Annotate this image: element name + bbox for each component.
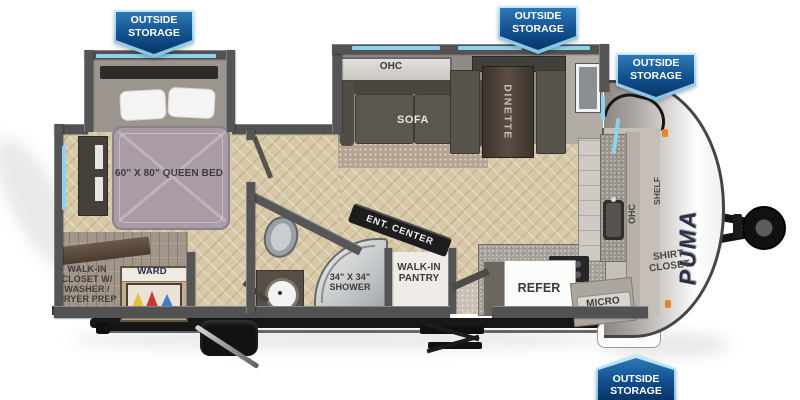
shelf-label-box: SHELF: [648, 166, 666, 216]
ohc-kitchen-label: OHC: [627, 204, 637, 224]
tongue-jack-wheel: [742, 206, 786, 250]
shower-label: 34" X 34" SHOWER: [318, 272, 382, 292]
banner-label: OUTSIDE STORAGE: [114, 14, 194, 39]
queen-bed-label: 60" X 80" QUEEN BED: [114, 168, 224, 179]
wall-slide-left: [84, 50, 93, 132]
outside-storage-banner-bottom-right: OUTSIDE STORAGE: [596, 354, 676, 400]
shelf-label: SHELF: [652, 177, 662, 205]
wall-bedroom-divider: [246, 182, 255, 314]
window-strip-rear: [62, 146, 66, 210]
tongue-jack-post: [733, 214, 742, 238]
ohc-sofa-label: OHC: [334, 61, 448, 72]
wall-slide-right: [226, 50, 235, 132]
wall-closet-divider: [186, 252, 195, 314]
pillow-right: [167, 87, 216, 119]
kitchen-sink-basin: [606, 203, 621, 237]
dinette-bench-left: [450, 70, 480, 154]
outside-storage-banner-front-right: OUTSIDE STORAGE: [616, 53, 696, 101]
refer-label: REFER: [504, 281, 574, 295]
kitchen-sink: [603, 200, 624, 240]
floorplan-canvas: PUMA 60" X 80" QUEEN BED WALK-IN CLOSET …: [0, 0, 800, 400]
ohc-kitchen-label-box: OHC: [623, 188, 641, 240]
stabilizer-jack-rod: [104, 325, 200, 331]
headboard: [100, 66, 218, 79]
wall-living-right: [599, 44, 609, 92]
toilet-lid: [268, 221, 294, 253]
outside-storage-banner-top-center: OUTSIDE STORAGE: [498, 6, 578, 54]
wall-bottom-right: [492, 306, 648, 318]
ward-label: WARD: [120, 267, 184, 278]
kitchen-faucet: [611, 197, 616, 202]
front-window: [576, 64, 600, 112]
cabinet-drawer: [95, 177, 103, 201]
dinette-table: DINETTE: [482, 66, 534, 158]
dinette-bench-right: [536, 70, 566, 154]
wall-bedroom-divider-top: [246, 130, 255, 140]
dinette-label: DINETTE: [502, 84, 514, 139]
hanger-yellow: [132, 293, 144, 307]
bedroom-wardrobe-cabinet: [78, 136, 108, 216]
wall-living-left: [332, 48, 342, 133]
cabinet-drawer: [95, 145, 103, 169]
hanger-red: [146, 291, 158, 307]
outside-storage-banner-top-left: OUTSIDE STORAGE: [114, 10, 194, 58]
pantry-label: WALK-IN PANTRY: [390, 262, 448, 285]
banner-label: OUTSIDE STORAGE: [616, 57, 696, 82]
pillow-left: [119, 89, 167, 121]
microwave-unit: MICRO: [570, 277, 636, 327]
banner-label: OUTSIDE STORAGE: [498, 10, 578, 35]
window-strip-top-1: [352, 46, 440, 50]
bath-sink-drain: [278, 291, 282, 295]
marker-light-top: [662, 129, 668, 137]
window-strip-right: [601, 96, 605, 120]
banner-label: OUTSIDE STORAGE: [596, 373, 676, 398]
